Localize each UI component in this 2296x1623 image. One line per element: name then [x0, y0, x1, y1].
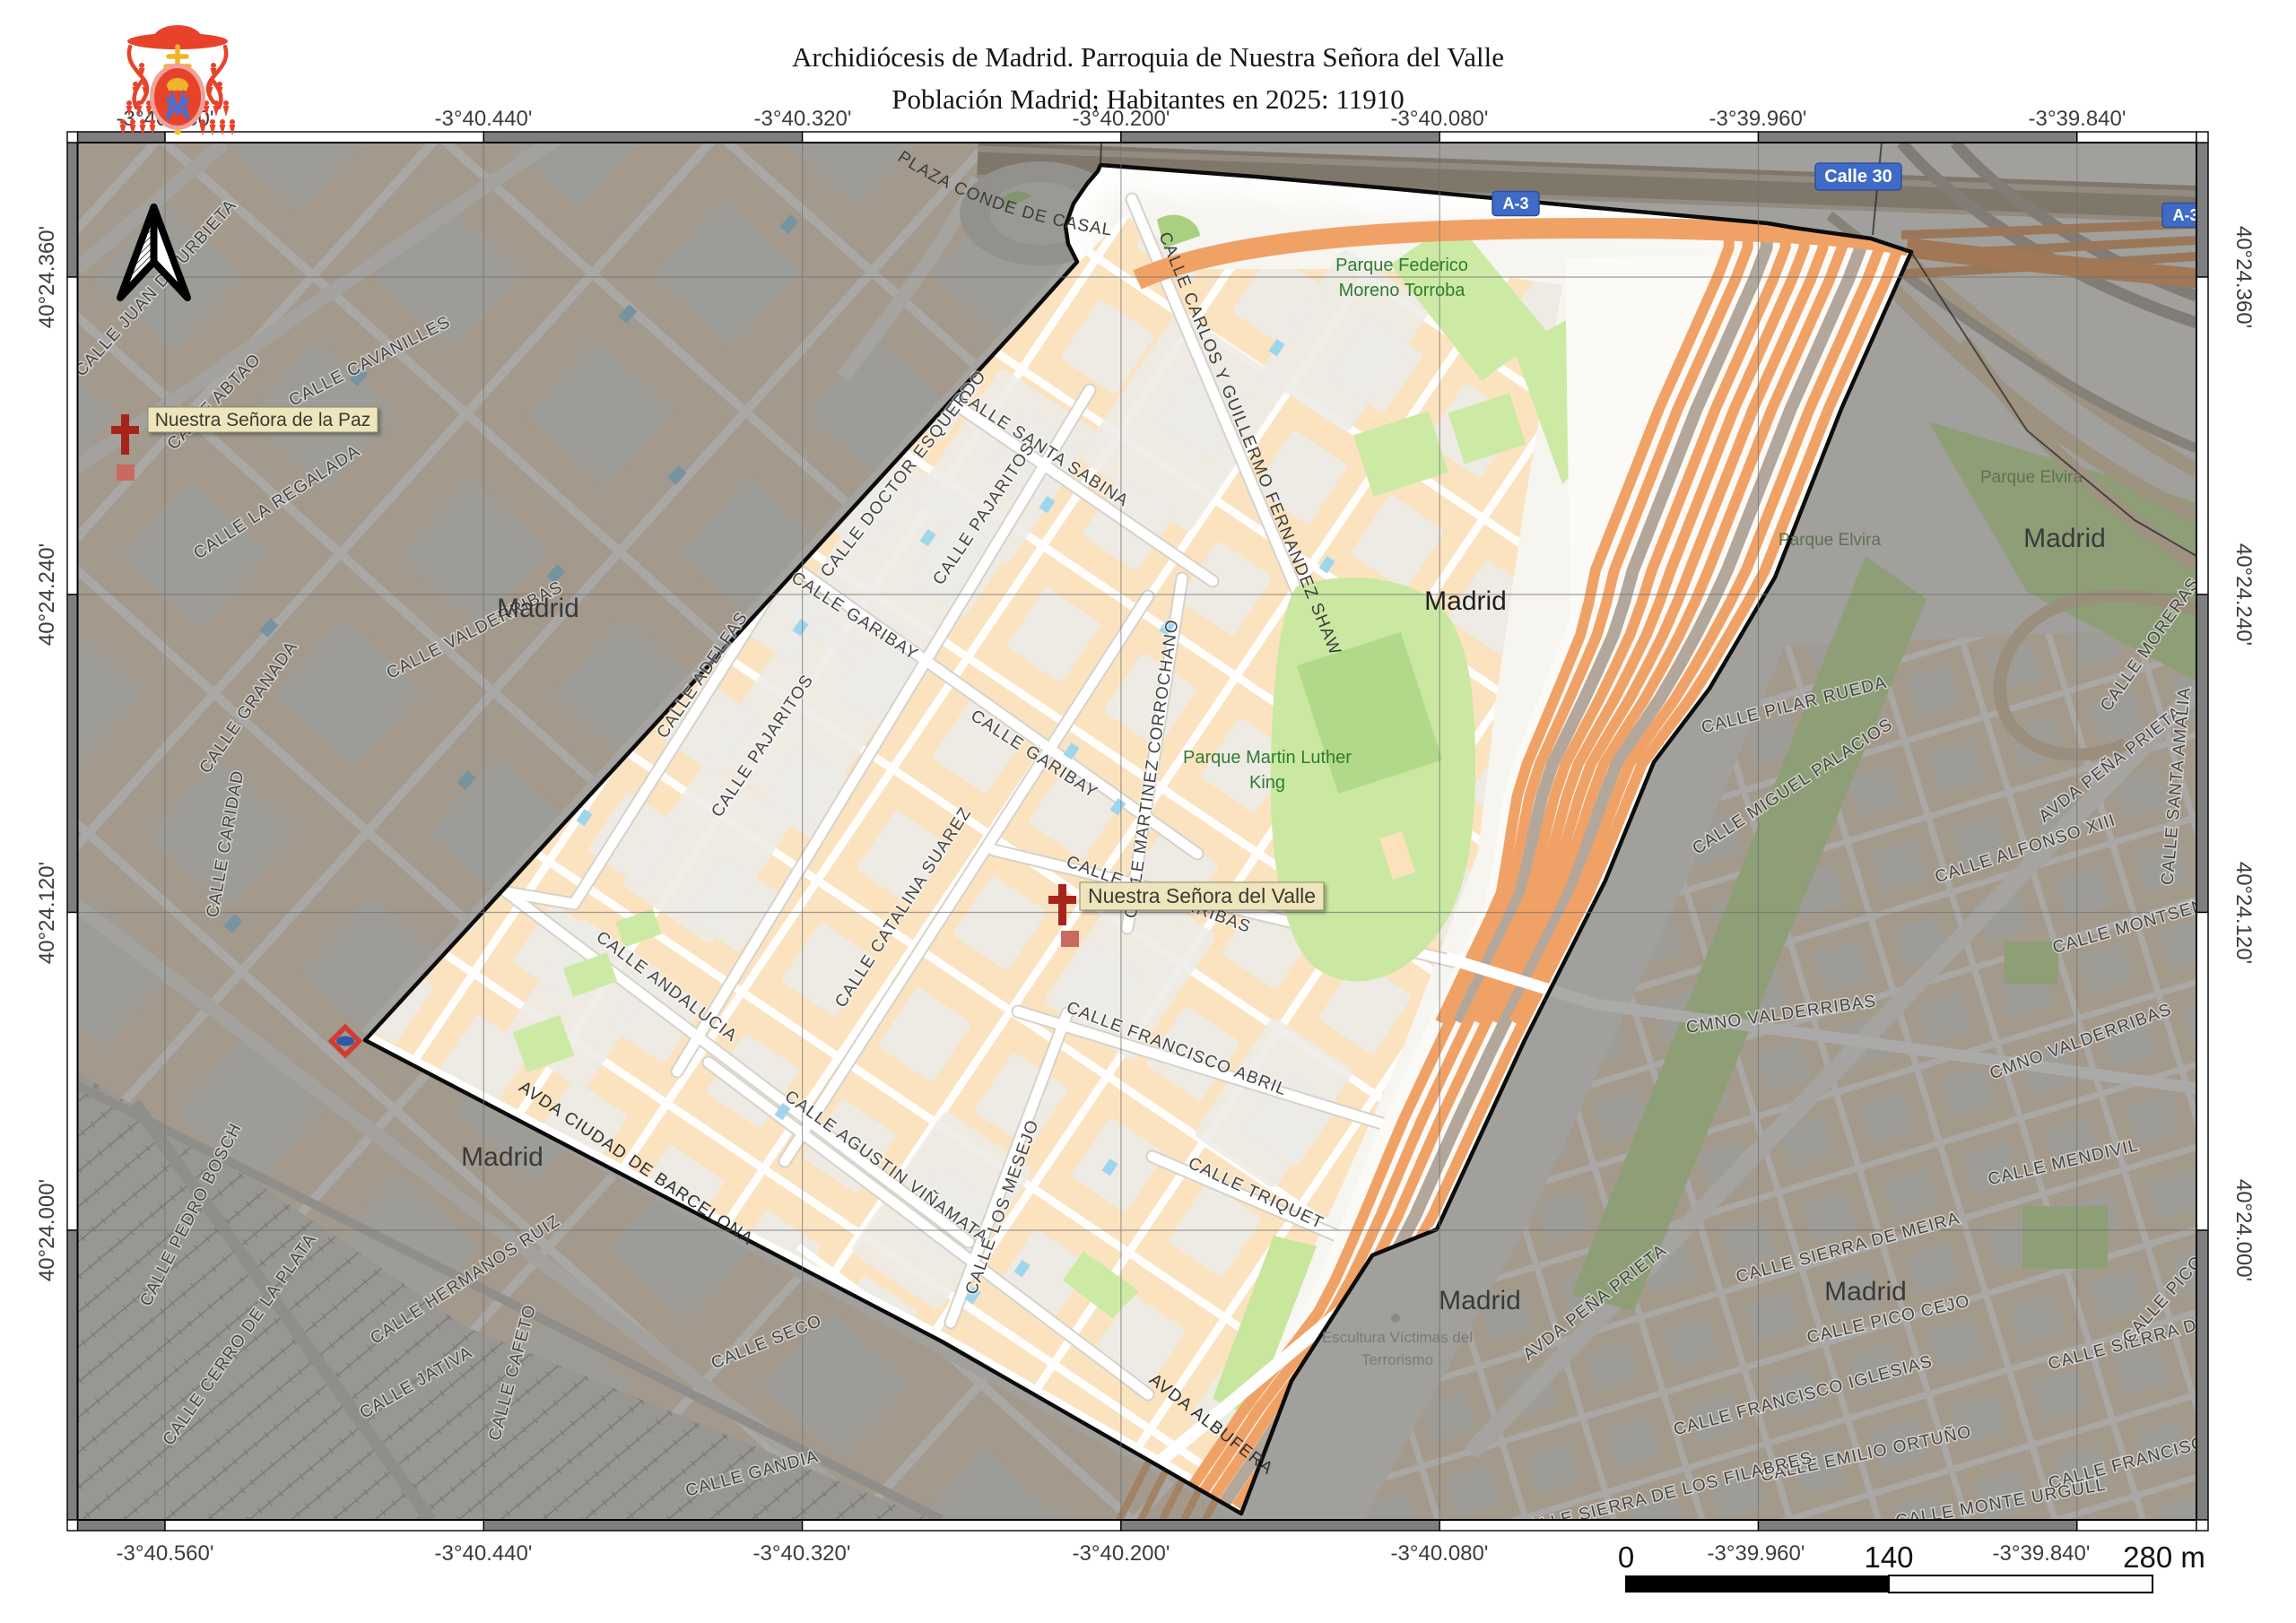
svg-text:40°24.360': 40°24.360' [2231, 226, 2256, 328]
svg-text:0: 0 [1618, 1541, 1634, 1574]
svg-text:Nuestra Señora del Valle: Nuestra Señora del Valle [1088, 884, 1316, 907]
svg-text:-3°40.080': -3°40.080' [1391, 107, 1489, 131]
svg-text:40°24.240': 40°24.240' [2231, 543, 2256, 646]
svg-text:-3°39.840': -3°39.840' [2029, 107, 2126, 131]
svg-text:Nuestra Señora de la Paz: Nuestra Señora de la Paz [155, 410, 370, 430]
svg-text:Madrid: Madrid [2023, 524, 2106, 553]
svg-text:A-3: A-3 [2172, 206, 2198, 224]
svg-text:40°24.000': 40°24.000' [35, 1179, 59, 1281]
svg-text:King: King [1249, 773, 1285, 793]
svg-text:Madrid: Madrid [497, 594, 579, 623]
svg-text:-3°40.080': -3°40.080' [1391, 1541, 1489, 1566]
svg-text:40°24.360': 40°24.360' [35, 226, 59, 328]
svg-text:-3°40.200': -3°40.200' [1073, 1541, 1170, 1566]
svg-text:A-3: A-3 [1502, 195, 1528, 213]
svg-text:-3°40.560': -3°40.560' [117, 1541, 214, 1566]
svg-text:40°24.120': 40°24.120' [35, 862, 59, 964]
svg-text:Calle 30: Calle 30 [1824, 167, 1892, 187]
svg-text:-3°39.960': -3°39.960' [1708, 1541, 1805, 1566]
svg-text:-3°40.440': -3°40.440' [435, 107, 533, 131]
svg-text:Moreno Torroba: Moreno Torroba [1339, 281, 1466, 300]
svg-text:Madrid: Madrid [461, 1142, 544, 1172]
svg-text:Terrorismo: Terrorismo [1361, 1351, 1433, 1368]
svg-text:-3°40.320': -3°40.320' [754, 107, 852, 131]
svg-text:Parque Elvira: Parque Elvira [1980, 468, 2083, 487]
svg-text:40°24.240': 40°24.240' [35, 543, 59, 646]
svg-text:Parque Martin Luther: Parque Martin Luther [1183, 748, 1352, 768]
svg-text:Parque Federico: Parque Federico [1335, 256, 1468, 275]
svg-text:Madrid: Madrid [1424, 586, 1507, 616]
svg-text:-3°40.440': -3°40.440' [435, 1541, 533, 1566]
svg-text:-3°40.320': -3°40.320' [753, 1541, 851, 1566]
svg-text:Madrid: Madrid [1439, 1286, 1521, 1315]
svg-text:Escultura Víctimas del: Escultura Víctimas del [1322, 1329, 1473, 1346]
svg-text:-3°39.840': -3°39.840' [1993, 1541, 2091, 1566]
svg-text:-3°39.960': -3°39.960' [1709, 107, 1807, 131]
svg-text:Madrid: Madrid [1824, 1277, 1907, 1306]
svg-text:40°24.000': 40°24.000' [2231, 1179, 2256, 1281]
svg-text:140: 140 [1864, 1541, 1913, 1574]
svg-text:Parque Elvira: Parque Elvira [1779, 531, 1881, 550]
svg-text:280 m: 280 m [2123, 1541, 2205, 1574]
svg-text:-3°40.200': -3°40.200' [1073, 107, 1170, 131]
svg-text:40°24.120': 40°24.120' [2231, 862, 2256, 964]
svg-text:Archidiócesis de Madrid. Parro: Archidiócesis de Madrid. Parroquia de Nu… [792, 41, 1504, 73]
